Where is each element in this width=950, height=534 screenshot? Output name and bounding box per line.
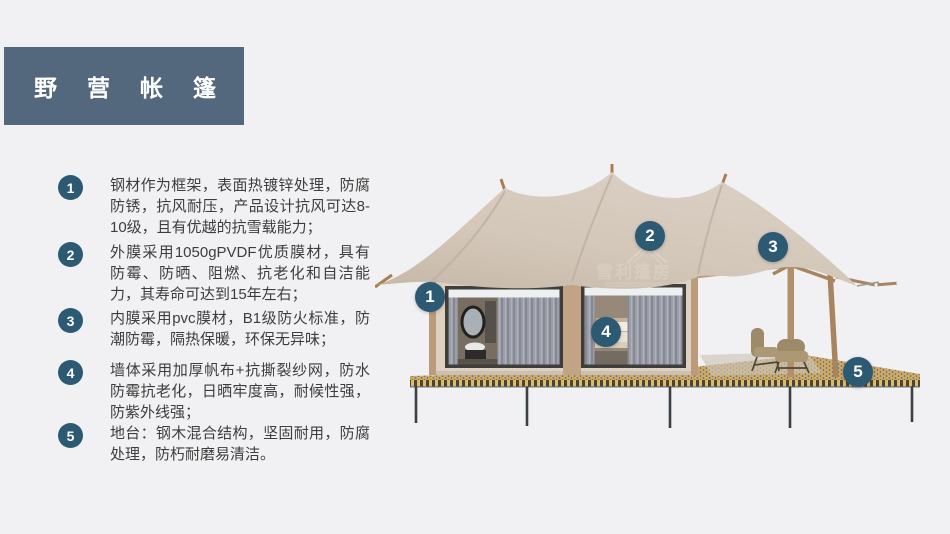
feature-item-3: 3 内膜采用pvc膜材，B1级防火标准，防潮防霉，隔热保暖，环保无异味； [58, 308, 390, 350]
feature-item-5: 5 地台：钢木混合结构，坚固耐用，防腐处理，防朽耐磨易清洁。 [58, 423, 390, 465]
svg-text:雪利篷房: 雪利篷房 [596, 262, 672, 282]
image-marker-3: 3 [758, 232, 788, 262]
feature-badge-2: 2 [58, 242, 83, 267]
feature-badge-1: 1 [58, 175, 83, 200]
left-window [445, 286, 563, 368]
feature-badge-3: 3 [58, 308, 83, 333]
feature-item-4: 4 墙体采用加厚帆布+抗撕裂纱网，防水防霉抗老化，日晒牢度高，耐候性强，防紫外线… [58, 360, 390, 423]
tent-illustration: 雪利篷房 [375, 155, 945, 435]
image-marker-1: 1 [415, 282, 445, 312]
slide: 野营帐篷 1 钢材作为框架，表面热镀锌处理，防腐防锈，抗风耐压，产品设计抗风可达… [0, 0, 950, 534]
title-block: 野营帐篷 [4, 47, 244, 125]
feature-badge-4: 4 [58, 360, 83, 385]
feature-text-3: 内膜采用pvc膜材，B1级防火标准，防潮防霉，隔热保暖，环保无异味； [110, 308, 370, 350]
feature-text-4: 墙体采用加厚帆布+抗撕裂纱网，防水防霉抗老化，日晒牢度高，耐候性强，防紫外线强； [110, 360, 370, 423]
feature-badge-5: 5 [58, 423, 83, 448]
feature-item-2: 2 外膜采用1050gPVDF优质膜材，具有防霉、防晒、阻燃、抗老化和自洁能力，… [58, 242, 390, 305]
image-marker-4: 4 [591, 317, 621, 347]
tent-product-image: 雪利篷房 1 2 3 4 5 [375, 155, 945, 435]
image-marker-5: 5 [843, 357, 873, 387]
image-marker-2: 2 [635, 221, 665, 251]
feature-text-5: 地台：钢木混合结构，坚固耐用，防腐处理，防朽耐磨易清洁。 [110, 423, 370, 465]
page-title: 野营帐篷 [4, 69, 246, 103]
deck-legs [416, 385, 912, 428]
feature-text-1: 钢材作为框架，表面热镀锌处理，防腐防锈，抗风耐压，产品设计抗风可达8-10级，且… [110, 175, 370, 238]
feature-item-1: 1 钢材作为框架，表面热镀锌处理，防腐防锈，抗风耐压，产品设计抗风可达8-10级… [58, 175, 390, 238]
feature-text-2: 外膜采用1050gPVDF优质膜材，具有防霉、防晒、阻燃、抗老化和自洁能力，其寿… [110, 242, 370, 305]
